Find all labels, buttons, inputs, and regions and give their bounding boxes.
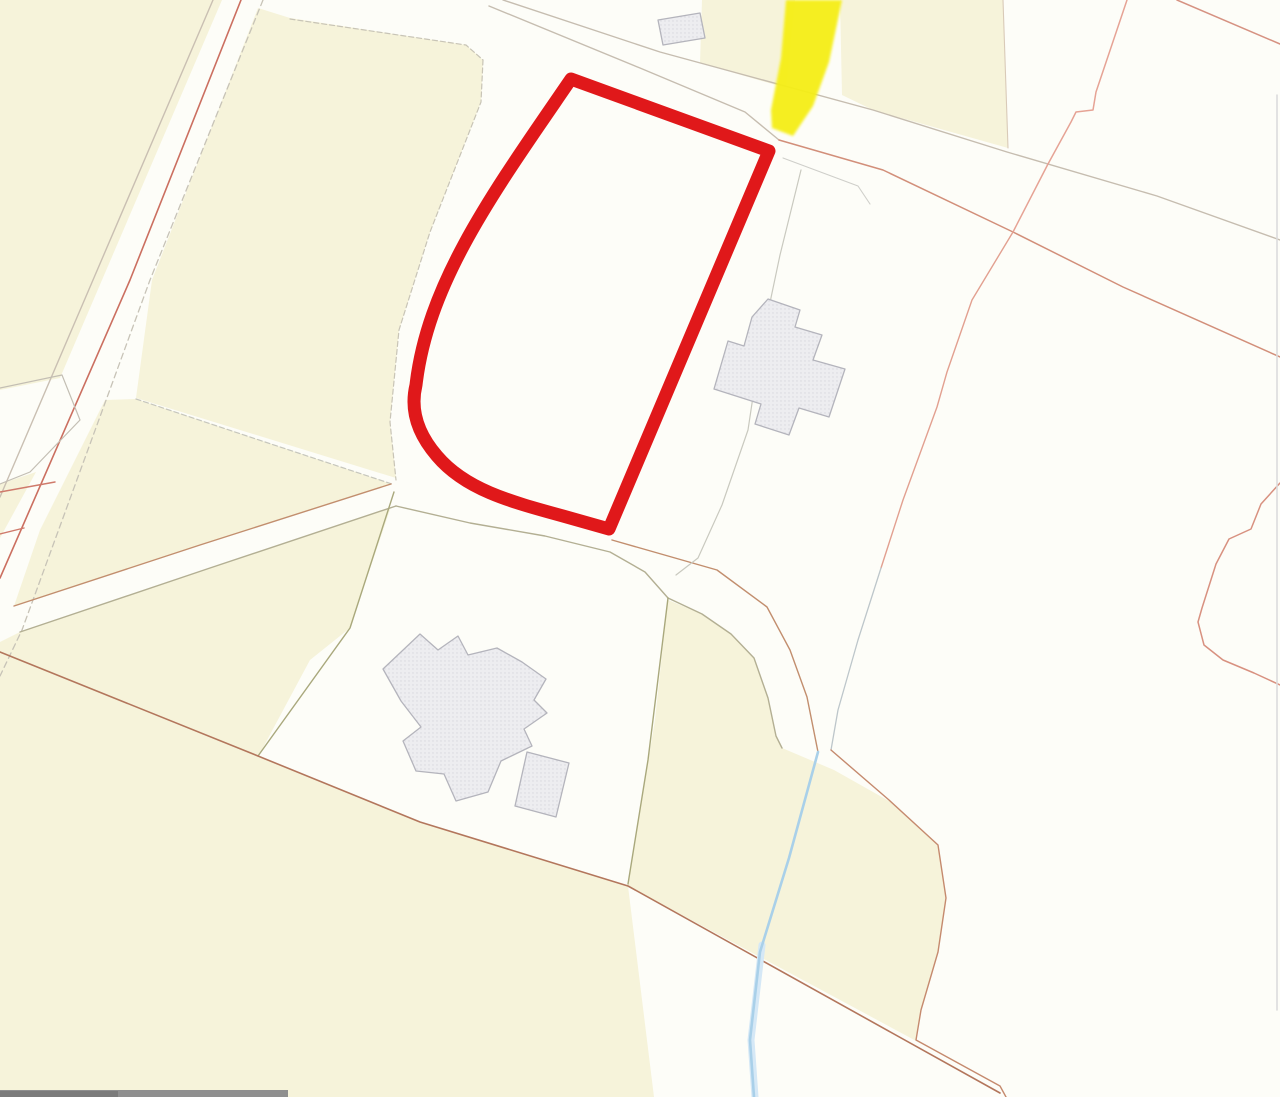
site-plan-map [0,0,1280,1097]
scale-bar-fragment-dark [0,1091,118,1097]
map-canvas [0,0,1280,1097]
